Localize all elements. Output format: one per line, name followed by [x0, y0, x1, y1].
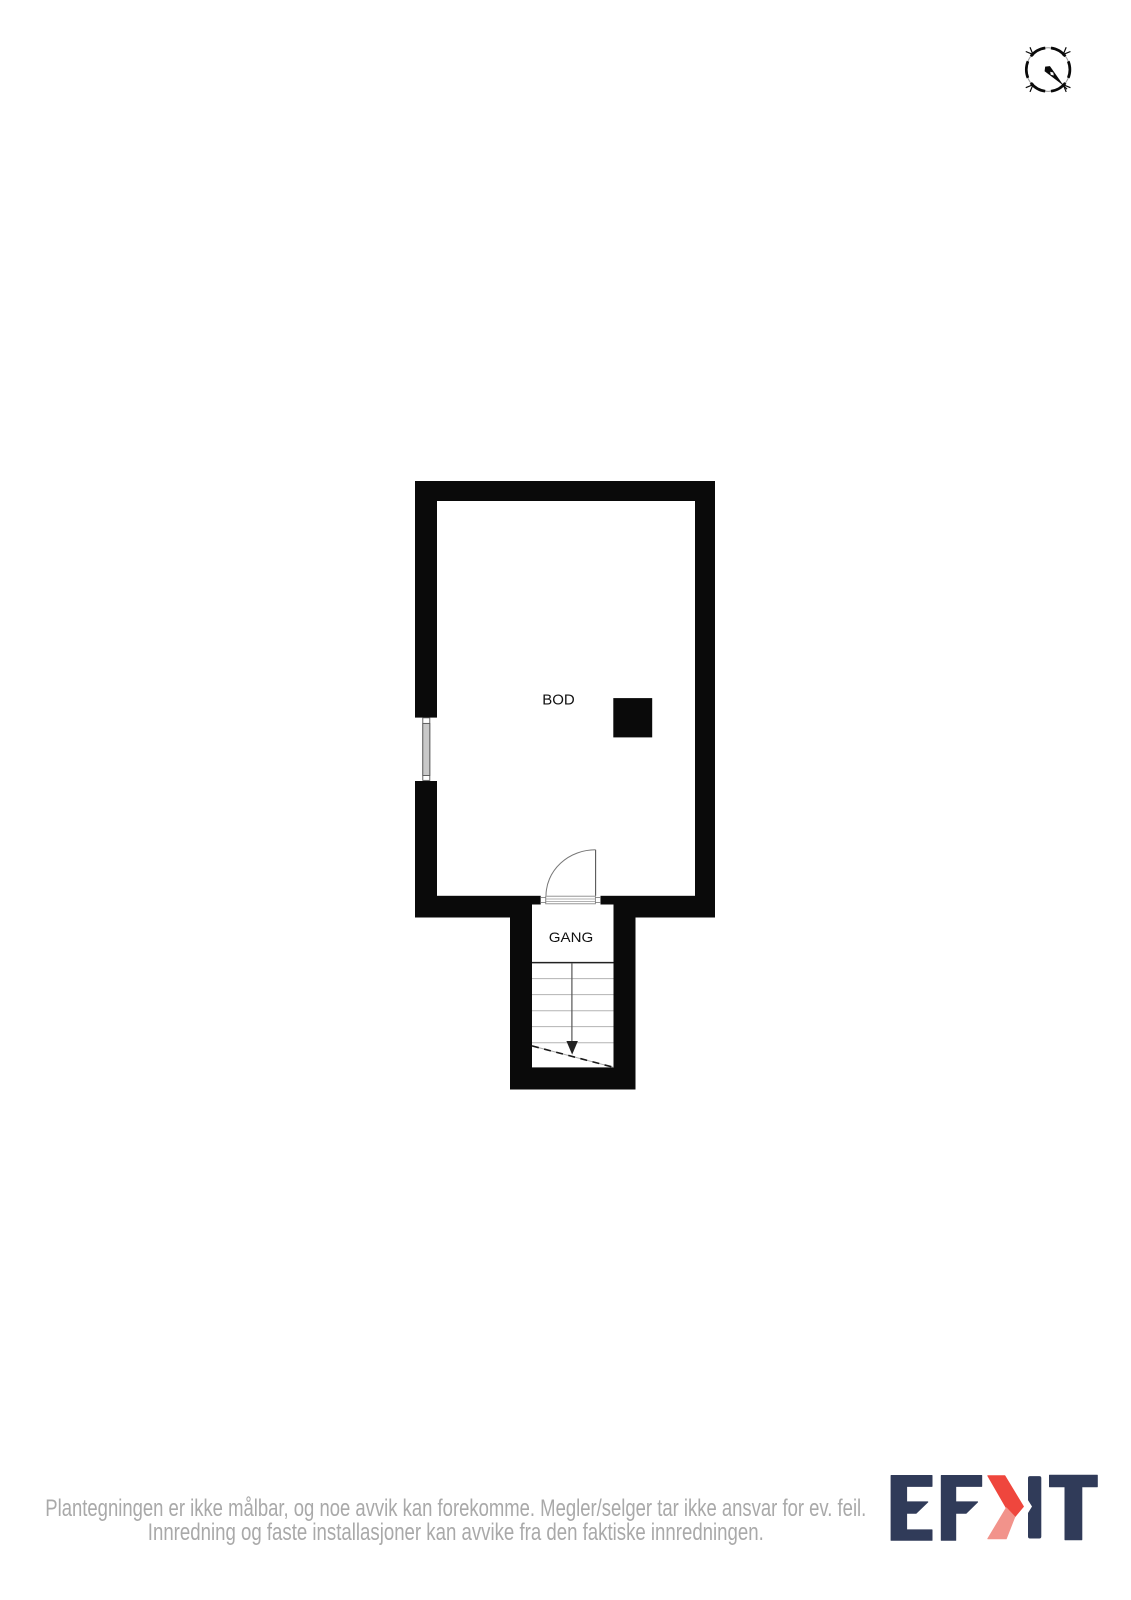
svg-text:GANG: GANG [549, 930, 594, 945]
svg-text:Innredning og faste installasj: Innredning og faste installasjoner kan a… [148, 1520, 764, 1546]
svg-text:BOD: BOD [542, 693, 575, 709]
svg-text:Plantegningen er ikke målbar,: Plantegningen er ikke målbar, og noe avv… [45, 1495, 866, 1522]
